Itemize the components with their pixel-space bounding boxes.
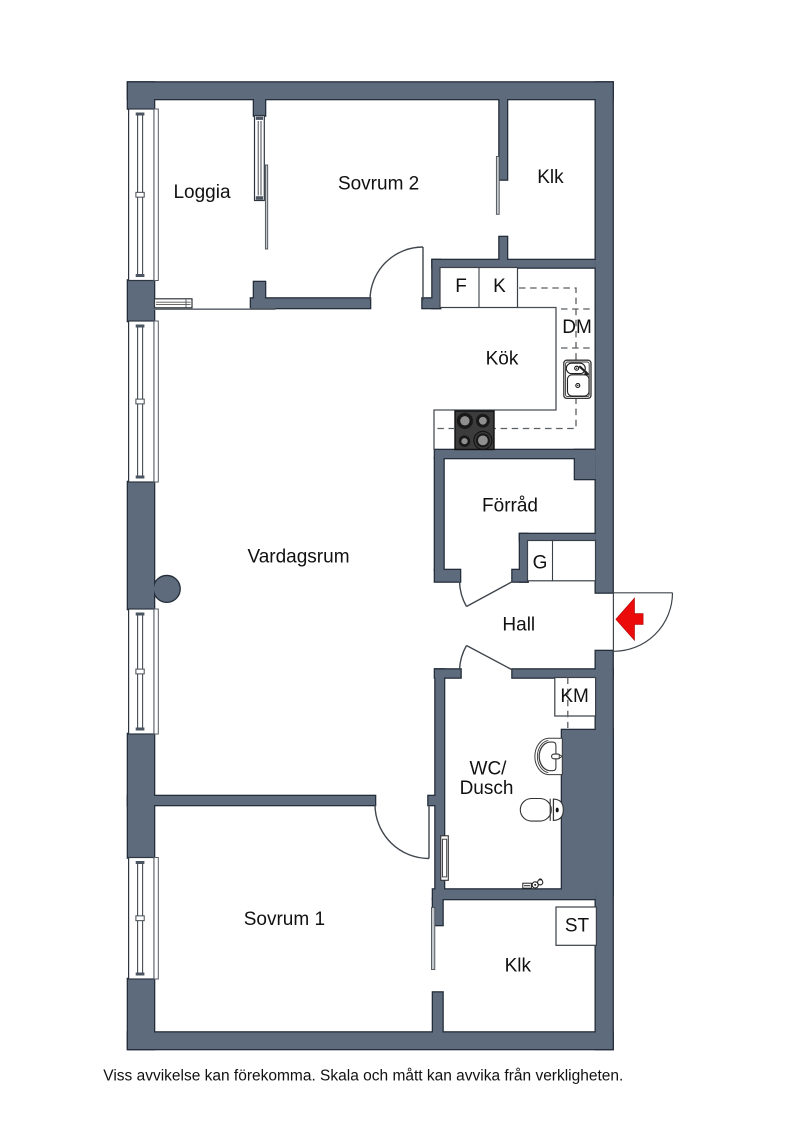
- svg-text:Hall: Hall: [502, 615, 535, 636]
- svg-text:Sovrum 2: Sovrum 2: [338, 174, 419, 195]
- svg-text:Loggia: Loggia: [173, 182, 230, 203]
- svg-text:ST: ST: [565, 916, 590, 937]
- svg-text:Kök: Kök: [486, 349, 519, 370]
- svg-text:DM: DM: [562, 317, 592, 338]
- svg-text:F: F: [455, 276, 467, 297]
- svg-text:WC/: WC/: [470, 759, 508, 780]
- svg-text:KM: KM: [560, 686, 589, 707]
- svg-text:Dusch: Dusch: [460, 778, 514, 799]
- svg-text:K: K: [493, 276, 506, 297]
- svg-text:Klk: Klk: [505, 956, 532, 977]
- svg-text:G: G: [533, 552, 548, 573]
- svg-text:Vardagsrum: Vardagsrum: [247, 547, 349, 568]
- svg-text:Förråd: Förråd: [482, 495, 538, 516]
- svg-text:Viss avvikelse kan förekomma.: Viss avvikelse kan förekomma. Skala och …: [103, 1068, 623, 1085]
- svg-text:Sovrum 1: Sovrum 1: [244, 909, 325, 930]
- svg-text:Klk: Klk: [537, 167, 564, 188]
